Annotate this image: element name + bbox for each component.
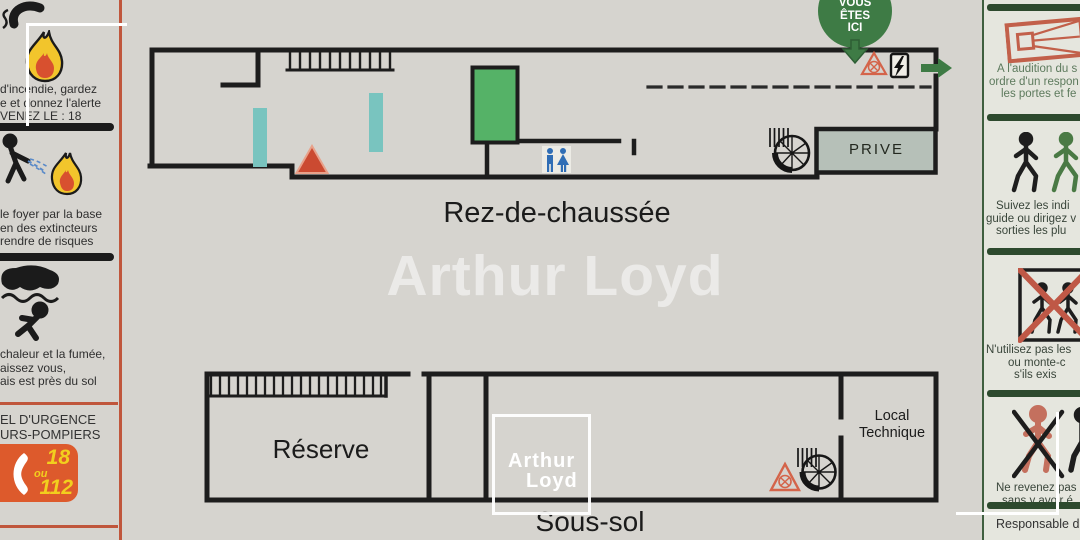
bs-spiral-stair-icon <box>798 448 836 489</box>
room-label-local-technique: Local Technique <box>846 408 938 442</box>
instruction-alarm-text: A l'audition du s ordre d'un respon les … <box>989 63 1079 101</box>
smoke-crawl-icon <box>0 262 90 352</box>
gf-red-triangle-icon <box>297 146 328 173</box>
watermark-text: Arthur Loyd <box>340 243 770 309</box>
you-are-here-label: VOUS ÊTES ICI <box>822 0 888 35</box>
logo-box: Arthur Loyd <box>492 414 591 515</box>
instruction-follow-text: Suivez les indi guide ou dirigez v sorti… <box>986 200 1076 238</box>
gf-teal-strip-1 <box>253 108 267 167</box>
gf-hazard-triangle-icon <box>862 53 886 74</box>
gf-spiral-stair-icon <box>770 128 809 170</box>
viewfinder-bracket-top-left <box>26 23 127 126</box>
divider <box>0 402 118 405</box>
phone-icon <box>2 449 36 499</box>
bs-stairs-ticks <box>211 377 381 395</box>
electrical-panel-icon <box>891 54 908 77</box>
instruction-extinguisher-text: le foyer par la base en des extincteurs … <box>0 208 102 249</box>
logo-line2: Loyd <box>526 470 578 493</box>
divider <box>0 525 118 528</box>
responsable-footer: Responsable d' <box>996 518 1080 531</box>
divider <box>987 248 1080 255</box>
evacuation-plan-sign: { "left_panel": { "section_fire": { "lin… <box>0 0 1080 540</box>
gf-teal-strip-2 <box>369 93 383 152</box>
walking-people-icon <box>1010 132 1080 198</box>
no-elevator-icon <box>1018 268 1080 344</box>
emergency-title: EL D'URGENCE URS-POMPIERS <box>0 413 100 442</box>
alarm-icon <box>1004 13 1080 68</box>
divider <box>987 4 1080 11</box>
bs-hazard-triangle-icon <box>771 464 799 490</box>
divider <box>987 390 1080 397</box>
gf-alcove-wall <box>223 52 258 85</box>
gf-stairs-ticks <box>290 53 390 70</box>
gf-room-green <box>473 68 518 143</box>
emergency-number-112: 112 <box>40 477 73 498</box>
viewfinder-bracket-bottom-right <box>956 412 1059 515</box>
instruction-smoke-text: chaleur et la fumée, aissez vous, ais es… <box>0 348 105 389</box>
emergency-numbers-box: 18 ou 112 <box>0 444 78 502</box>
ground-floor-title: Rez-de-chaussée <box>380 197 734 230</box>
wc-icon <box>542 146 571 173</box>
divider <box>987 114 1080 121</box>
divider <box>0 253 114 261</box>
instruction-no-elevator-text: N'utilisez pas les ou monte-c s'ils exis <box>986 344 1071 382</box>
emergency-number-18: 18 <box>47 447 70 468</box>
gf-bottom-wall <box>150 166 817 177</box>
room-label-reserve: Réserve <box>240 434 402 465</box>
room-label-prive: PRIVE <box>817 141 936 158</box>
extinguisher-person-icon <box>0 133 100 207</box>
